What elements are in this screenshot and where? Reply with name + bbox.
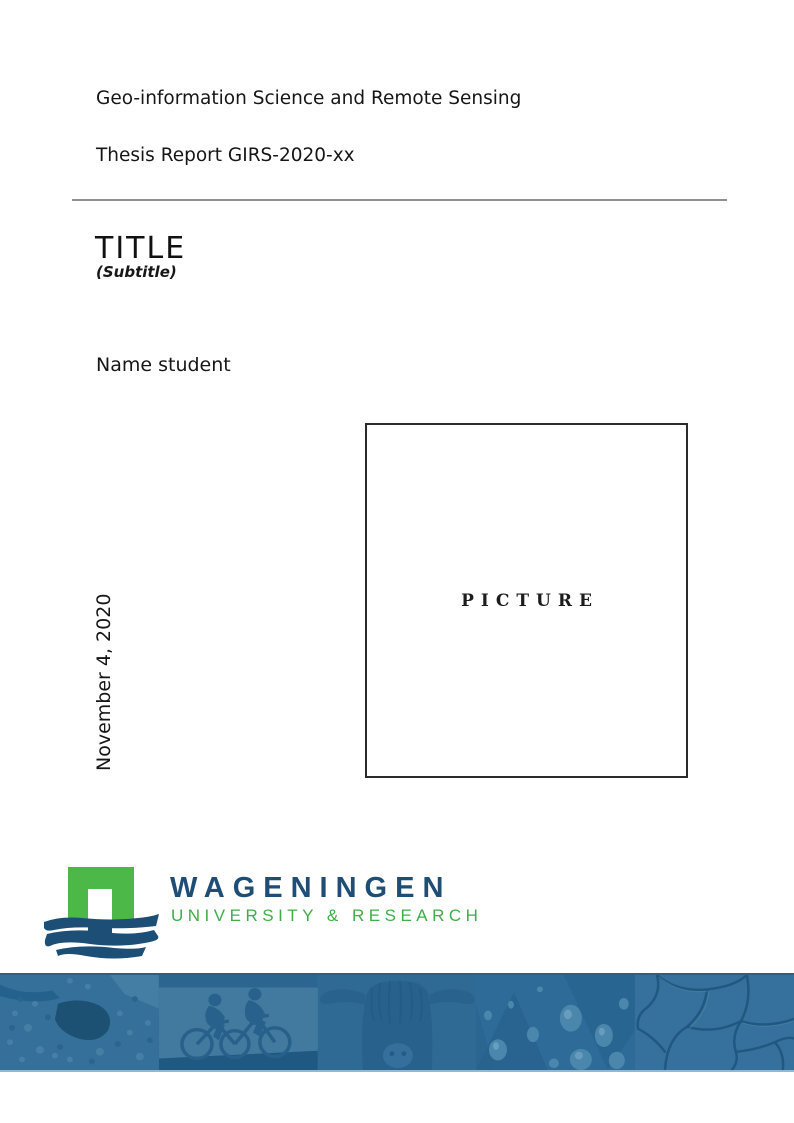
thesis-subtitle: (Subtitle) xyxy=(96,263,177,281)
picture-placeholder-label: PICTURE xyxy=(454,591,599,611)
wageningen-arch-icon xyxy=(42,862,162,964)
aerial-map-photo xyxy=(0,975,159,1070)
wageningen-logo: WAGENINGEN UNIVERSITY & RESEARCH xyxy=(42,862,472,964)
thesis-title: TITLE xyxy=(95,231,186,266)
cracked-earth-photo xyxy=(635,975,794,1070)
author-name: Name student xyxy=(96,354,231,376)
photo-banner xyxy=(0,973,794,1072)
report-number: Thesis Report GIRS-2020-xx xyxy=(96,145,355,166)
horizontal-rule xyxy=(72,199,727,201)
highland-cow-photo xyxy=(318,975,477,1070)
logo-wordmark: WAGENINGEN xyxy=(170,872,451,905)
program-name: Geo-information Science and Remote Sensi… xyxy=(96,88,521,109)
picture-placeholder-box: PICTURE xyxy=(365,423,688,778)
cyclists-photo xyxy=(159,975,318,1070)
publication-date: November 4, 2020 xyxy=(93,594,115,771)
water-droplets-photo xyxy=(476,975,635,1070)
thesis-cover-page: Geo-information Science and Remote Sensi… xyxy=(0,0,794,1123)
logo-tagline: UNIVERSITY & RESEARCH xyxy=(171,906,482,926)
